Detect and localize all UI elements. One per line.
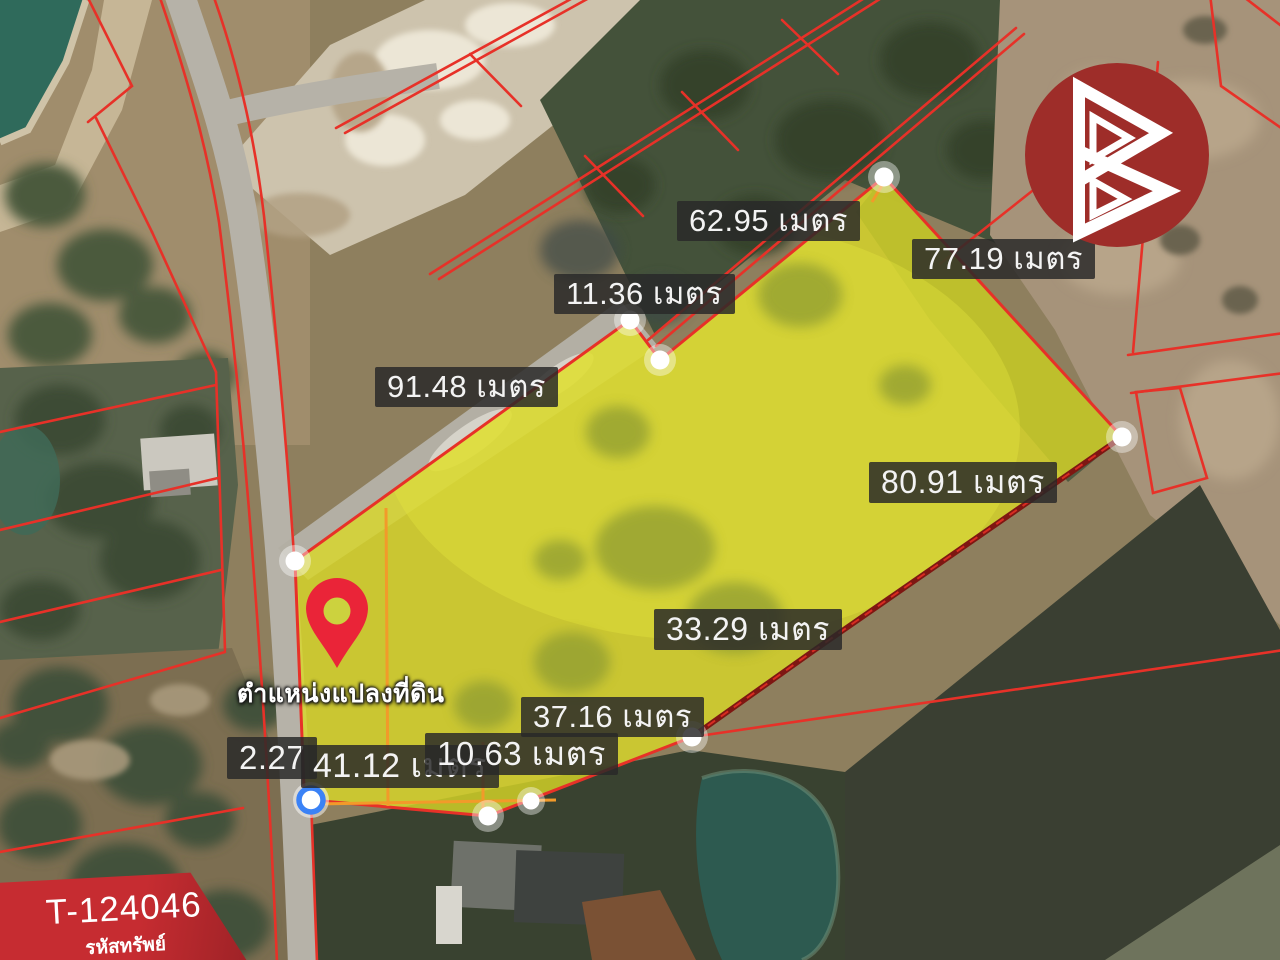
measurement-label-bottom-mid: 10.63 เมตร [425, 733, 618, 775]
measurement-label-notch: 11.36 เมตร [554, 274, 735, 314]
b-triangle-icon [1025, 63, 1209, 247]
measurement-label-upper-left: 91.48 เมตร [375, 367, 558, 407]
property-map-image: 62.95 เมตร 77.19 เมตร 11.36 เมตร 91.48 เ… [0, 0, 1280, 960]
measurement-label-lower-right: 33.29 เมตร [654, 609, 842, 650]
measurement-label-top: 62.95 เมตร [677, 201, 860, 241]
measurement-label-bottom: 37.16 เมตร [521, 697, 704, 737]
property-code: T-124046 [33, 884, 215, 933]
brand-logo [1025, 63, 1209, 247]
pin-caption: ตำแหน่งแปลงที่ดิน [237, 674, 444, 714]
measurement-label-right: 80.91 เมตร [869, 462, 1057, 503]
